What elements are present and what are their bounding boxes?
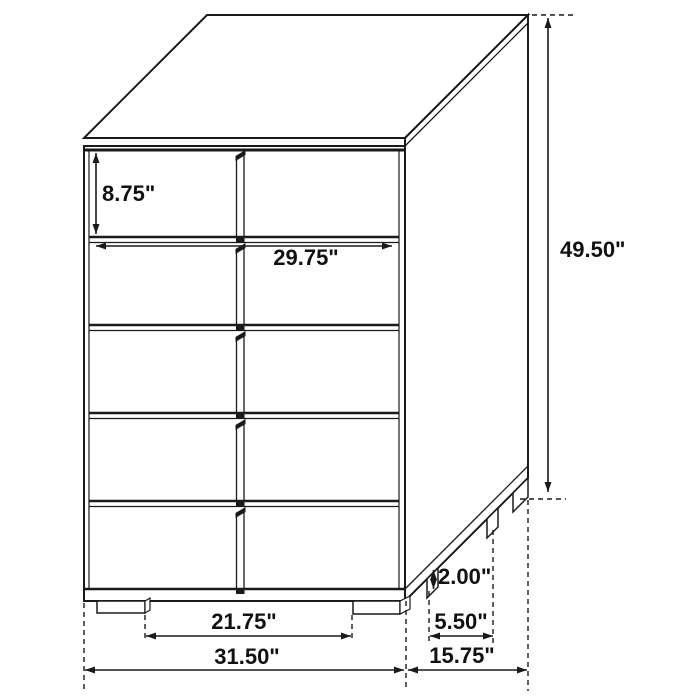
dim-label-overall-height: 49.50"	[560, 237, 625, 262]
dim-label-overall-depth: 15.75"	[429, 643, 494, 668]
dim-label-foot-height: 2.00"	[438, 564, 491, 589]
chest-body	[84, 15, 528, 614]
front-right-foot	[353, 601, 400, 614]
handle-base	[236, 237, 245, 242]
dim-label-overall-width: 31.50"	[214, 644, 279, 669]
front-left-foot	[97, 601, 145, 613]
dim-label-side-foot-spacing: 5.50"	[434, 609, 487, 634]
dim-label-top-drawer-height: 8.75"	[102, 181, 155, 206]
dim-label-drawer-width: 29.75"	[273, 245, 338, 270]
chest-dimension-drawing: 8.75" 29.75" 49.50" 2.00" 5.50" 21.75" 3…	[0, 0, 700, 700]
dim-label-front-foot-spacing: 21.75"	[211, 609, 276, 634]
diagram-canvas: 8.75" 29.75" 49.50" 2.00" 5.50" 21.75" 3…	[0, 0, 700, 700]
